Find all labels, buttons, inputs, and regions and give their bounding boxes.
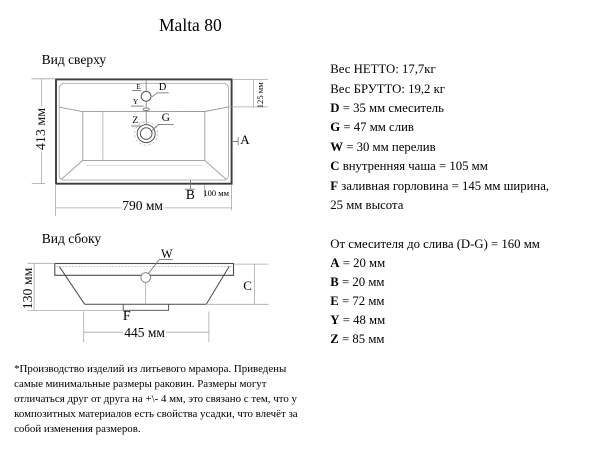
- svg-text:125 мм: 125 мм: [255, 82, 265, 108]
- svg-text:130 мм: 130 мм: [20, 267, 35, 309]
- svg-text:413 мм: 413 мм: [34, 108, 49, 150]
